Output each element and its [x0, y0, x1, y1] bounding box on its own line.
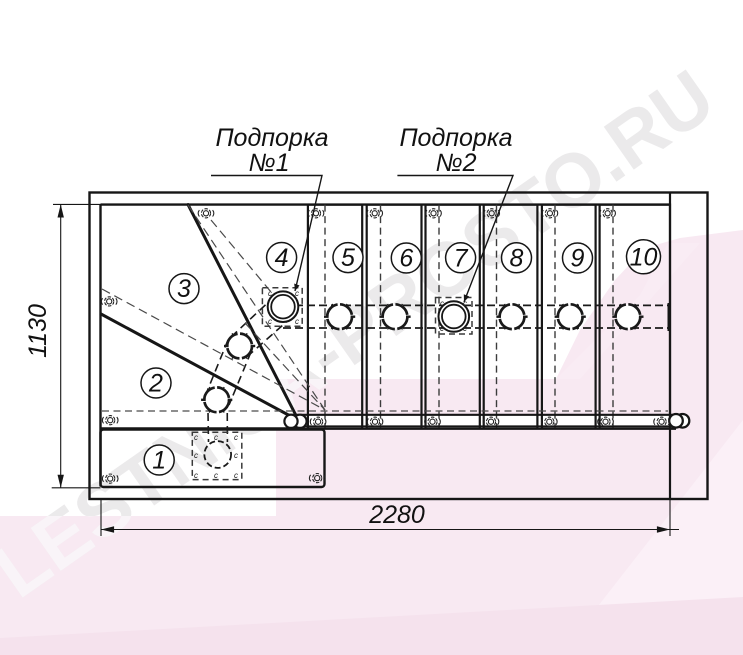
svg-text:2: 2: [148, 370, 163, 398]
svg-text:c: c: [194, 471, 198, 480]
svg-text:8: 8: [510, 244, 524, 272]
svg-text:c: c: [214, 471, 218, 480]
svg-text:c: c: [268, 289, 272, 298]
svg-text:4: 4: [275, 244, 289, 272]
svg-text:5: 5: [341, 244, 355, 272]
svg-text:c: c: [194, 433, 198, 442]
svg-text:1130: 1130: [24, 304, 52, 358]
svg-text:c: c: [194, 451, 198, 460]
svg-text:c: c: [295, 317, 299, 326]
svg-text:№1: №1: [249, 149, 290, 177]
svg-text:c: c: [234, 433, 238, 442]
svg-text:Подпорка: Подпорка: [215, 124, 328, 152]
svg-text:9: 9: [571, 245, 585, 273]
svg-text:c: c: [463, 324, 467, 333]
svg-text:c: c: [268, 317, 272, 326]
svg-text:c: c: [440, 324, 444, 333]
svg-text:2280: 2280: [368, 501, 425, 529]
svg-text:7: 7: [454, 244, 469, 272]
svg-text:c: c: [234, 451, 238, 460]
svg-text:c: c: [214, 433, 218, 442]
svg-text:Подпорка: Подпорка: [399, 124, 512, 152]
svg-text:№2: №2: [436, 149, 477, 177]
svg-text:3: 3: [177, 275, 191, 303]
svg-text:c: c: [440, 299, 444, 308]
svg-text:6: 6: [399, 245, 413, 273]
svg-text:1: 1: [152, 447, 166, 475]
svg-text:10: 10: [630, 243, 658, 271]
svg-text:c: c: [234, 471, 238, 480]
